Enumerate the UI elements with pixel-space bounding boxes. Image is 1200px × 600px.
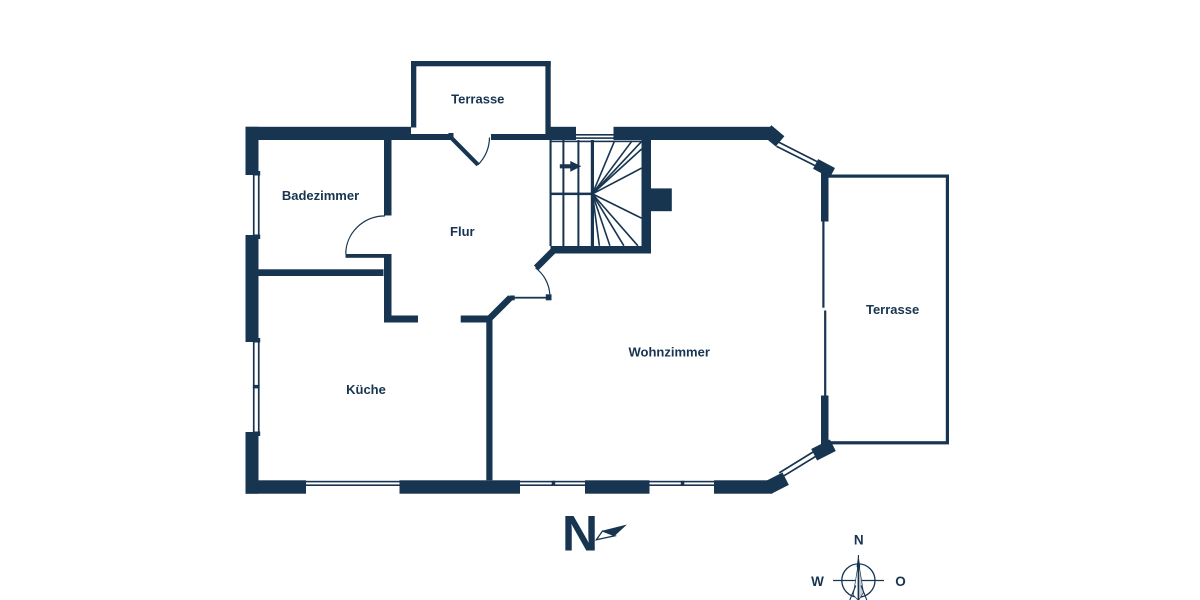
svg-text:O: O — [895, 574, 906, 589]
svg-text:Wohnzimmer: Wohnzimmer — [629, 345, 710, 360]
svg-text:Terrasse: Terrasse — [451, 92, 504, 107]
svg-text:Badezimmer: Badezimmer — [282, 188, 359, 203]
svg-text:Flur: Flur — [450, 224, 475, 239]
svg-text:W: W — [811, 574, 824, 589]
svg-text:N: N — [854, 533, 864, 548]
svg-text:Küche: Küche — [346, 382, 386, 397]
svg-text:N: N — [562, 506, 598, 562]
svg-text:Terrasse: Terrasse — [866, 302, 919, 317]
